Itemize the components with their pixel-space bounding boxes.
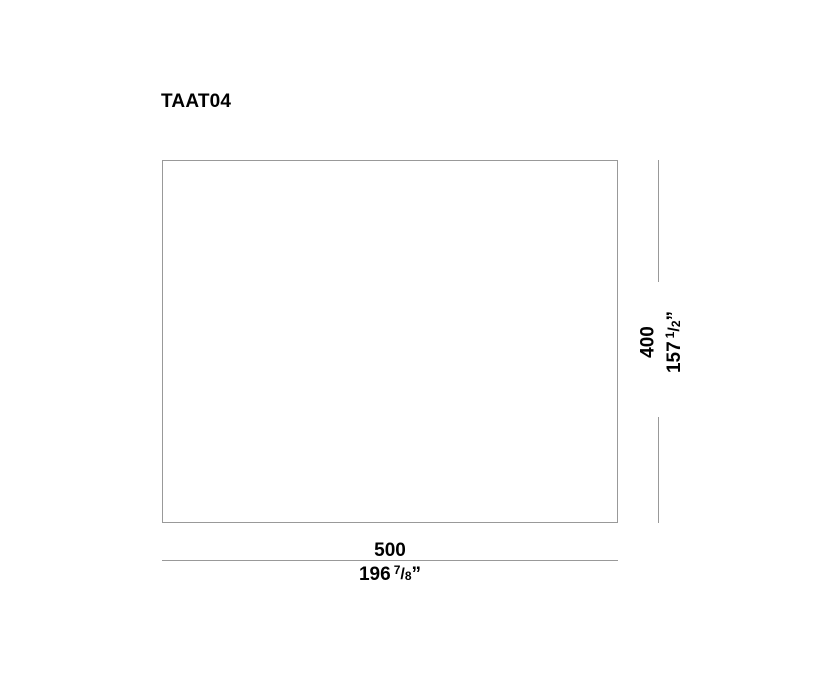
height-dimension-mm-label: 400 [639, 326, 658, 358]
dimension-drawing: TAAT04 400 1571/2” 500 1967/8” [0, 0, 840, 679]
height-frac-denominator: 2 [669, 320, 683, 327]
height-dimension-line-lower [658, 417, 659, 523]
width-dimension-mm-label: 500 [162, 541, 618, 560]
height-inch-mark: ” [664, 311, 685, 321]
panel-outline [162, 160, 618, 523]
width-frac-denominator: 8 [405, 569, 412, 583]
height-frac-slash: / [666, 327, 683, 331]
height-dimension-inches-label: 1571/2” [664, 311, 684, 373]
height-dimension-line-upper [658, 160, 659, 282]
height-frac-numerator: 1 [663, 332, 677, 339]
height-inches-whole: 157 [664, 341, 685, 373]
width-inch-mark: ” [412, 564, 422, 585]
width-inches-whole: 196 [359, 564, 391, 585]
product-code-title: TAAT04 [161, 92, 231, 111]
width-dimension-inches-label: 1967/8” [162, 564, 618, 584]
